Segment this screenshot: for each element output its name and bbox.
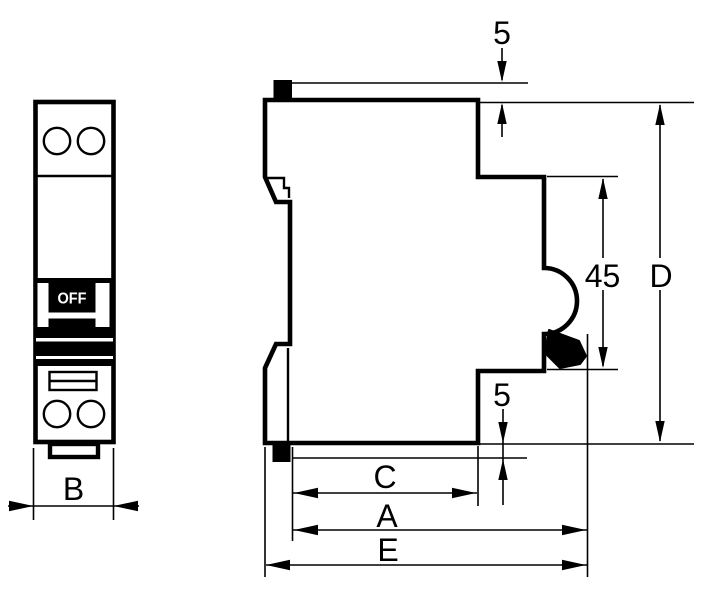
toggle-stripe-lower <box>36 356 113 359</box>
dim-b-arrow-right <box>114 501 139 511</box>
dim-d-arrow-down <box>655 421 664 442</box>
toggle-stripe-upper <box>36 338 113 342</box>
dim-b-arrow-left <box>9 501 34 511</box>
dim-c-label: C <box>373 459 396 495</box>
front-view: OFF B <box>8 102 139 520</box>
dim-e-arrow-right <box>562 560 586 570</box>
toggle-lever-gap <box>49 313 96 319</box>
dim-e-arrow-left <box>266 560 290 570</box>
dim-e: E <box>265 447 587 577</box>
dim-c-arrow-right <box>452 488 476 498</box>
side-view: 5 45 D 5 <box>265 15 694 577</box>
terminal-pin-bottom <box>273 444 291 462</box>
dim-5-bottom-arrow-up <box>498 459 507 480</box>
dim-d-label: D <box>649 258 672 294</box>
drawing-canvas: OFF B <box>0 0 714 614</box>
dim-a-arrow-right <box>562 525 586 535</box>
din-clip-tab <box>50 444 98 457</box>
dim-a-arrow-left <box>294 525 318 535</box>
toggle-slot-right <box>96 283 110 327</box>
dim-45-arrow-up <box>598 178 607 199</box>
dim-45-label: 45 <box>585 258 621 294</box>
dim-45-arrow-down <box>598 347 607 368</box>
dim-b-label: B <box>63 471 84 507</box>
dim-5-bottom-label: 5 <box>493 377 511 413</box>
dim-d-arrow-up <box>655 104 664 125</box>
toggle-slot-left <box>38 283 49 327</box>
dim-c-arrow-left <box>294 488 318 498</box>
breaker-dimension-drawing: OFF B <box>0 0 714 614</box>
side-body-outline <box>265 100 577 443</box>
toggle-state-label: OFF <box>58 291 87 308</box>
dim-e-label: E <box>377 532 398 568</box>
dim-5-bottom-arrow-down <box>498 422 507 443</box>
dim-a-label: A <box>376 498 398 534</box>
terminal-pin-top <box>274 80 293 101</box>
din-clip-hook <box>545 330 586 368</box>
toggle-assembly: OFF <box>36 278 113 366</box>
dim-5-top-arrow-up <box>497 103 506 124</box>
dim-5-top-label: 5 <box>493 15 511 51</box>
dim-5-top-arrow-down <box>497 61 506 82</box>
